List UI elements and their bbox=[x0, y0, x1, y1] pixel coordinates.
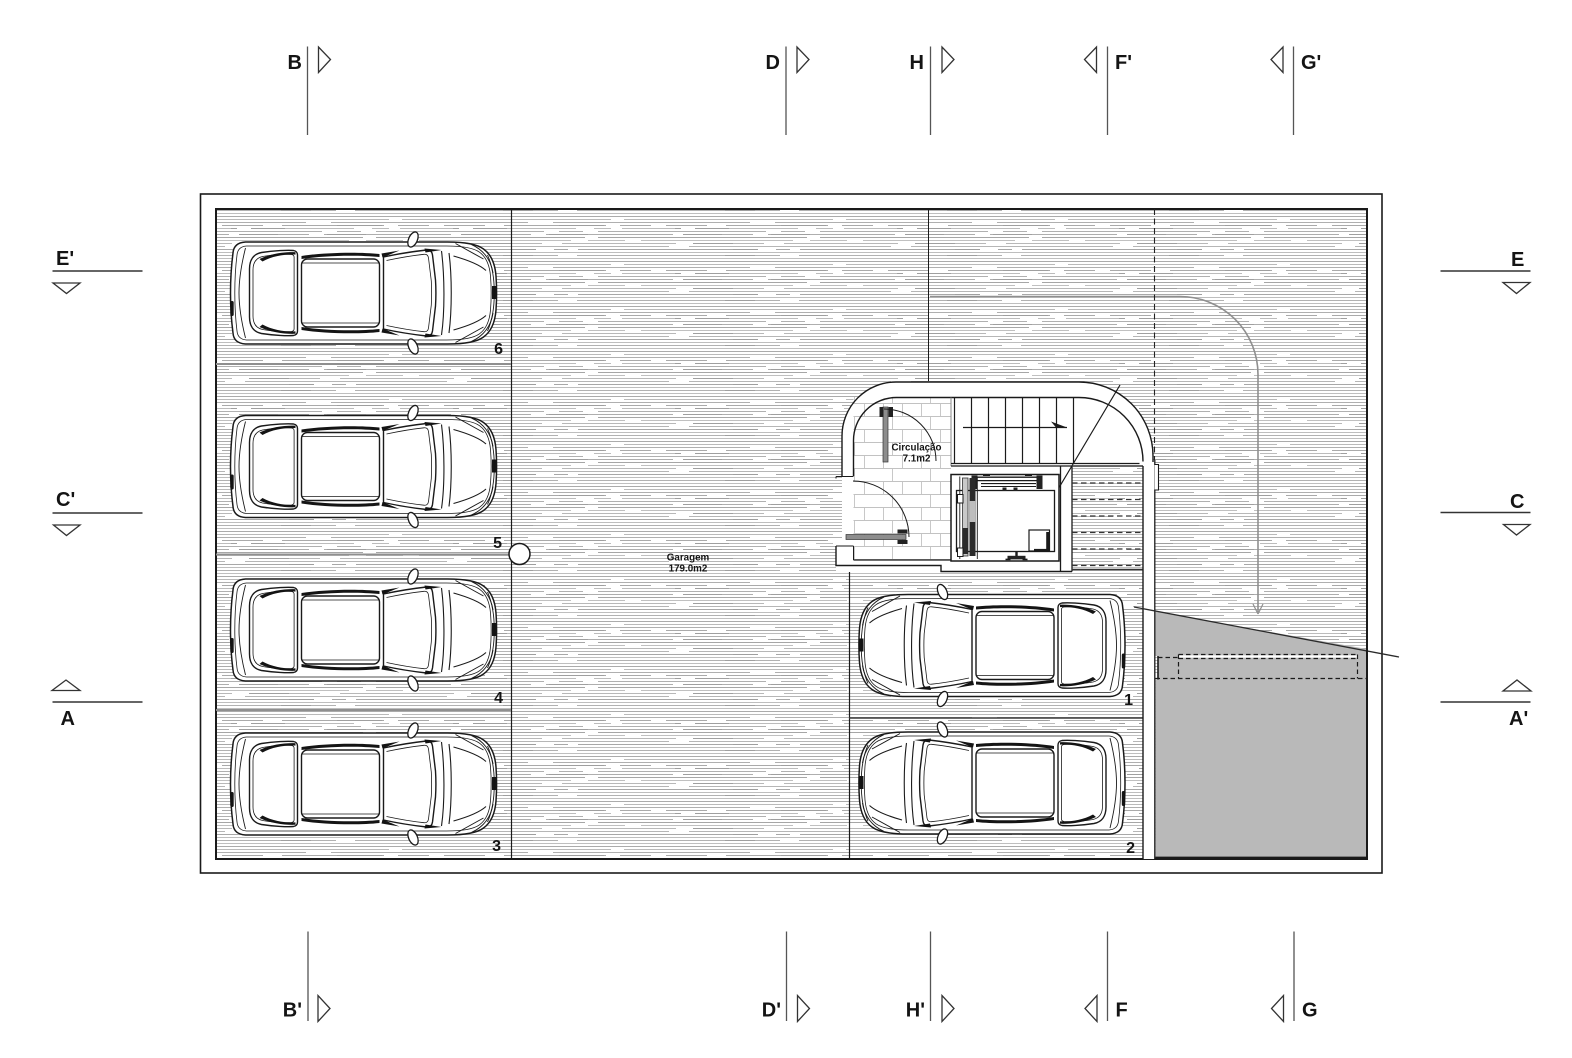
svg-text:D: D bbox=[766, 52, 780, 74]
svg-text:B': B' bbox=[283, 1000, 302, 1022]
svg-text:G: G bbox=[1302, 1000, 1318, 1022]
svg-text:F: F bbox=[1116, 1000, 1128, 1022]
svg-text:C: C bbox=[1510, 491, 1524, 513]
svg-text:179.0m2: 179.0m2 bbox=[669, 564, 708, 575]
svg-text:G': G' bbox=[1301, 52, 1321, 74]
svg-text:5: 5 bbox=[493, 535, 502, 552]
svg-text:H': H' bbox=[906, 1000, 925, 1022]
svg-text:B: B bbox=[288, 52, 302, 74]
svg-text:E': E' bbox=[56, 248, 74, 270]
svg-text:C': C' bbox=[56, 489, 75, 511]
svg-text:3: 3 bbox=[492, 838, 501, 855]
svg-text:A: A bbox=[61, 708, 75, 730]
svg-text:F': F' bbox=[1115, 52, 1132, 74]
svg-text:E: E bbox=[1511, 249, 1524, 271]
svg-text:D': D' bbox=[762, 1000, 781, 1022]
svg-text:4: 4 bbox=[494, 690, 503, 707]
svg-text:A': A' bbox=[1509, 708, 1528, 730]
svg-text:2: 2 bbox=[1126, 840, 1135, 857]
svg-text:Garagem: Garagem bbox=[667, 553, 710, 564]
svg-text:H: H bbox=[910, 52, 924, 74]
svg-text:6: 6 bbox=[494, 341, 503, 358]
svg-text:7.1m2: 7.1m2 bbox=[903, 454, 931, 465]
svg-text:1: 1 bbox=[1124, 692, 1133, 709]
